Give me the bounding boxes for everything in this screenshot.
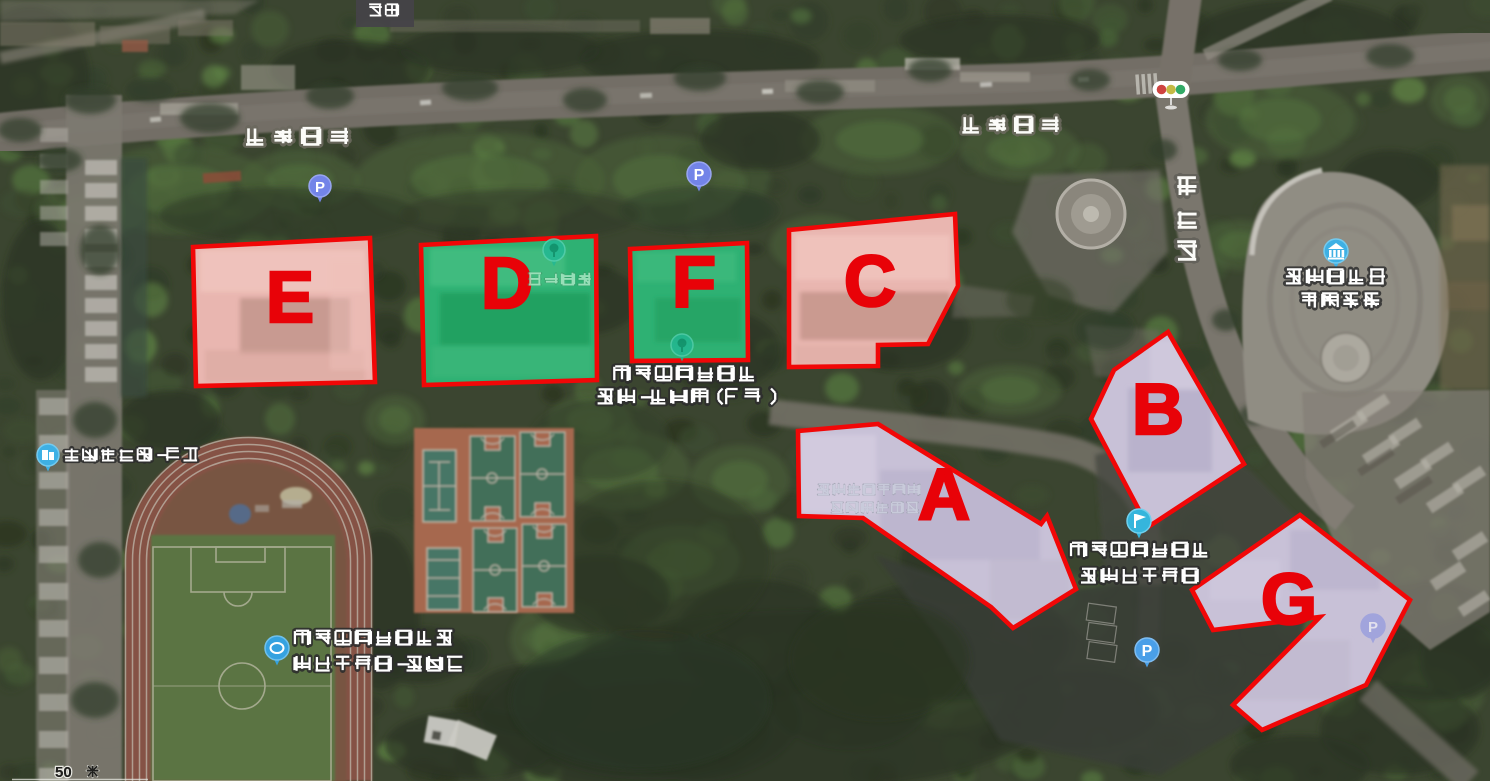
svg-text:P: P xyxy=(315,179,325,196)
svg-text:A: A xyxy=(918,455,970,535)
svg-text:P: P xyxy=(1142,643,1153,660)
svg-text:50: 50 xyxy=(55,764,72,781)
svg-text:C: C xyxy=(844,242,896,322)
svg-text:B: B xyxy=(1132,370,1184,450)
svg-text:E: E xyxy=(266,258,314,338)
svg-text:F: F xyxy=(672,243,716,323)
svg-text:P: P xyxy=(1368,619,1378,636)
svg-text:D: D xyxy=(481,244,533,324)
svg-text:P: P xyxy=(694,167,705,184)
svg-text:G: G xyxy=(1261,560,1317,640)
